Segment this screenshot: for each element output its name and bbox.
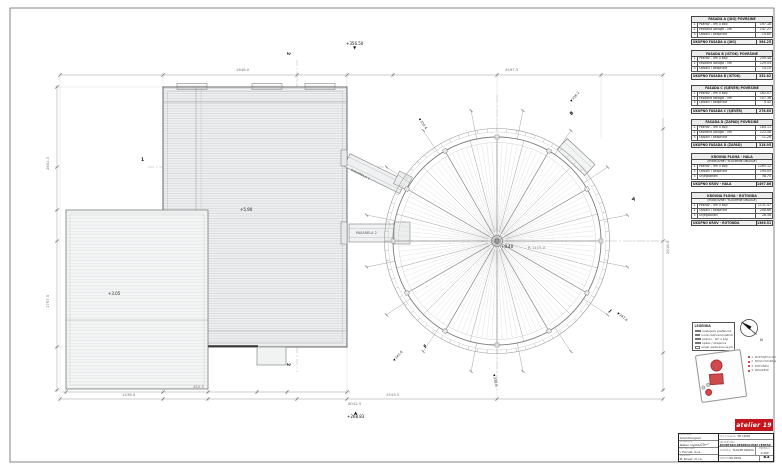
row-label: Pokrov - lim u boji [698,165,756,169]
title-block: atelier 19 naručitelj Grad Novigrad proj… [678,418,774,462]
walkway-1-door [341,150,347,166]
section-marker: 2 [285,52,289,55]
keymap-hall [709,373,724,385]
legend-swatch-icon [695,334,700,337]
area-table: FASADA D (ZAPAD) POVRŠINE 1 Pokrov - lim… [691,119,773,148]
row-label: Pokrov - lim u boji [698,23,756,27]
note-text: 4. PASARELE [751,368,769,372]
field-value: I. Horvat, d.i.a. [680,451,718,454]
total-value: 364.25 [756,40,772,44]
total-label: UKUPNO KROV - HALA [692,182,756,186]
area-table: KROVNA PLOHA - HALA (POKROVNE I TLOCRTNE… [691,153,773,187]
note-bullet-icon [748,365,750,367]
dim-label: 6042.5 [348,402,361,406]
legend-swatch-icon [695,338,701,341]
keymap-note: 4. PASARELE [748,368,776,372]
date-value: 06.2019. [729,456,741,460]
total-value: 318.95 [756,143,772,147]
title-block-left: naručitelj Grad Novigrad projektant Atel… [679,434,719,461]
rotunda-roof [365,95,668,390]
table-total-row: UKUPNO FASADA C (SJEVER) 278.85 [691,108,773,114]
scale-cell: MJERILO 1:200 [755,447,773,454]
row-value: 14.10 [756,67,772,71]
table-total-row: UKUPNO FASADA B (ISTOK) 352.62 [691,73,773,79]
drawing-sheet: 1846.0 4497.5 2602.0 1797.5 1438.0 2543.… [0,0,782,470]
dim-label: 1438.0 [122,393,135,397]
row-label: Pokrov - lim u boji [698,92,756,96]
total-label: UKUPNO FASADA C (SJEVER) [692,109,756,113]
site-key-map [695,349,747,403]
row-value: 38.70 [756,175,772,179]
table-row: 3 Snjegobrani 38.70 [691,175,773,180]
sheet-number-cell: E3 [759,456,773,461]
area-tables: FASADA A (JUG) POVRŠINE 1 Pokrov - lim u… [691,16,773,231]
row-label: Pokrov - lim u boji [698,126,756,130]
section-marker: 1 [141,159,144,163]
field-value: Atelier nord d.o.o. [680,444,718,447]
field-value: Grad Novigrad [680,437,718,440]
sheet-content: SADRŽAJ: TLOCRT KROVA [719,447,755,454]
area-table: FASADA A (JUG) POVRŠINE 1 Pokrov - lim u… [691,16,773,45]
scale-value: 1:200 [760,451,768,455]
level-triangle-icon: ▼ [353,46,356,50]
keymap-notes: 1. POSTOJEĆA DVORANA 2. NOVA DVORANA 3. … [748,355,776,373]
title-block-field: ovl. arhitekt I. Horvat, d.i.a. [679,448,718,455]
note-bullet-icon [748,361,750,363]
level-marker: +356.50 ▼ [346,42,363,50]
total-label: UKUPNO FASADA A (JUG) [692,40,756,44]
row-label: Opšavi i okapnice [698,136,756,140]
legend-items: postojeća građevina nova čelična konstru… [695,329,733,349]
north-label: N [760,338,763,342]
note-bullet-icon [748,356,750,358]
sheet-number: E3 [761,456,773,461]
table-row: 3 Opšavi i okapnice 14.10 [691,67,773,72]
table-total-row: UKUPNO FASADA D (ZAPAD) 318.95 [691,142,773,148]
title-block-grid: naručitelj Grad Novigrad projektant Atel… [678,433,774,462]
stair-block [557,139,595,176]
note-bullet-icon [748,370,750,372]
table-row: 3 Opšavi i okapnice 19.80 [691,33,773,38]
table-row: 3 Opšavi i okapnice 9.42 [691,101,773,106]
legend-swatch-icon [695,346,700,349]
row-label: Opšavi i okapnice [698,67,756,71]
date-cell: DATUM 06.2019. [719,456,759,461]
total-value: 1366.51 [756,221,772,225]
dim-label: 2543.5 [386,393,399,397]
area-table: FASADA C (SJEVER) POVRŠINE 1 Pokrov - li… [691,85,773,114]
total-label: UKUPNO FASADA B (ISTOK) [692,74,756,78]
row-label: Fasadna obloga - lim [698,97,756,101]
total-value: 278.85 [756,109,772,113]
table-total-row: UKUPNO KROV - HALA 1497.86 [691,181,773,187]
project-title: GRAĐEVINA: SPORTSKO-REKREACIJSKI CENTAR … [719,440,773,448]
level-marker: +3.05 [108,292,120,296]
project-number-label: broj projekta: [720,435,737,438]
ray-level-value: 338.6 [492,377,497,387]
total-label: UKUPNO KROV - ROTONDA [692,221,756,225]
dim-label: 2618.0 [666,241,670,254]
legend-swatch-icon [695,330,701,333]
area-table: FASADA B (ISTOK) POVRŠINE 1 Pokrov - lim… [691,50,773,79]
level-value: +268.83 [347,415,364,419]
dim-label: R 1115.0 [528,246,545,250]
row-label: Snjegobrani [698,214,756,218]
legend-item: smjer pada krovne plohe [695,345,733,349]
walkway-label: PASARELA 2 [356,231,377,235]
title-block-right: broj projekta: TD 19/06 GRAĐEVINA: SPORT… [719,434,773,461]
row-label: Pokrov - lim u boji [698,57,756,61]
row-value: 9.42 [756,101,772,105]
content-value: TLOCRT KROVA [733,448,754,452]
section-marker: 2 [285,363,289,366]
project-number-value: TD 19/06 [737,434,750,438]
row-value: 26.38 [756,214,772,218]
plan-drawing [0,0,782,470]
total-value: 1497.86 [756,182,772,186]
dim-label: 4497.5 [505,68,518,72]
row-value: 19.80 [756,33,772,37]
date-label: DATUM [720,457,729,460]
table-total-row: UKUPNO KROV - ROTONDA 1366.51 [691,220,773,226]
row-label: Opšavi i okapnice [698,101,756,105]
title-block-field: naručitelj Grad Novigrad [679,434,718,441]
keymap-rotunda [710,359,724,373]
row-label: Snjegobrani [698,175,756,179]
row-value: 162.07 [756,92,772,96]
legend: LEGENDA postojeća građevina nova čelična… [692,322,735,351]
annex-roof [66,210,208,389]
dim-label: 2602.0 [46,157,50,170]
row-label: Opšavi i okapnice [698,170,756,174]
legend-title: LEGENDA [695,324,733,328]
company-logo: atelier 19 [735,419,773,431]
roof-protrusion [257,347,286,365]
dim-label: 452.5 [193,385,204,389]
row-label: Fasadna obloga - lim [698,28,756,32]
table-row: 3 Snjegobrani 26.38 [691,214,773,219]
level-marker: ▲ +268.83 [347,411,364,419]
level-marker: +5.90 [240,208,252,212]
table-row: 3 Opšavi i okapnice 11.26 [691,136,773,141]
row-label: Fasadna obloga - lim [698,62,756,66]
content-label: SADRŽAJ: [720,449,732,452]
area-table: KROVNA PLOHA - ROTONDA (POKROVNE I TLOCR… [691,192,773,226]
row-label: Opšavi i okapnice [698,209,756,213]
legend-label: smjer pada krovne plohe [701,345,732,349]
title-block-field: projektant Atelier nord d.o.o. [679,441,718,448]
total-label: UKUPNO FASADA D (ZAPAD) [692,143,756,147]
row-label: Opšavi i okapnice [698,33,756,37]
field-value: M. Kovač, m.i.a. [680,458,718,461]
dim-label: 1797.5 [46,295,50,308]
row-label: Pokrov - lim u boji [698,204,756,208]
dim-label: 1846.0 [236,68,249,72]
level-marker: +8.40 [501,245,513,249]
total-value: 352.62 [756,74,772,78]
title-block-field: suradnik M. Kovač, m.i.a. [679,455,718,461]
row-label: Fasadna obloga - lim [698,131,756,135]
legend-swatch-icon [695,342,701,345]
table-total-row: UKUPNO FASADA A (JUG) 364.25 [691,39,773,45]
row-value: 11.26 [756,136,772,140]
keymap-annex [705,388,713,396]
keymap-existing [706,383,711,388]
